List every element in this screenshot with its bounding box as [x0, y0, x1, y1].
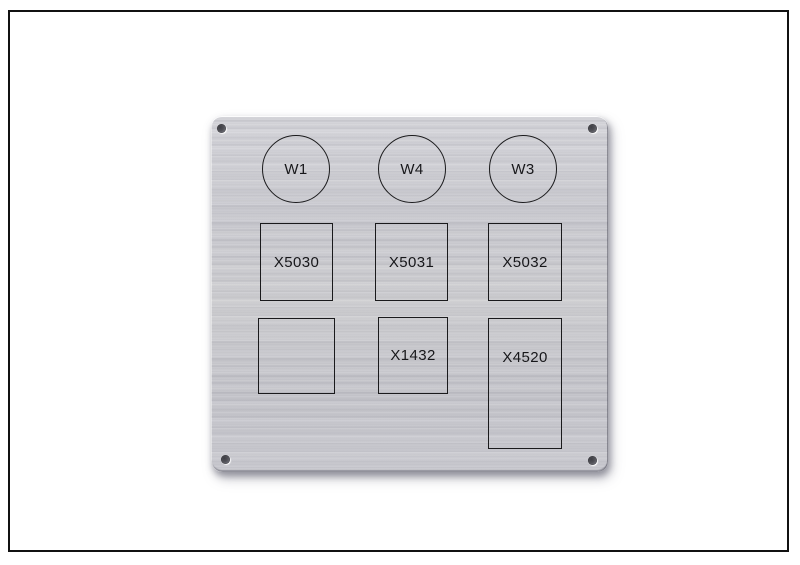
square-label-x1432: X1432 [390, 347, 435, 364]
aluminum-panel-plate: W1 W4 W3 X5030 X5031 X5032 X1432 [211, 116, 608, 472]
circle-label-w1: W1 [284, 161, 307, 178]
engraved-square-x1432: X1432 [378, 317, 448, 394]
engraved-circle-w4: W4 [378, 135, 446, 203]
mounting-hole-top-left [217, 124, 226, 133]
engraved-rectangle-x4520: X4520 [488, 318, 562, 449]
circle-label-w4: W4 [400, 161, 423, 178]
square-label-x5031: X5031 [389, 254, 434, 271]
square-label-x5032: X5032 [502, 254, 547, 271]
photo-canvas: W1 W4 W3 X5030 X5031 X5032 X1432 [0, 0, 800, 565]
engraved-square-x5030: X5030 [260, 223, 333, 301]
engraved-square-empty [258, 318, 335, 394]
picture-frame-border: W1 W4 W3 X5030 X5031 X5032 X1432 [8, 10, 789, 552]
mounting-hole-bottom-left [221, 455, 230, 464]
engraved-square-x5031: X5031 [375, 223, 448, 301]
mounting-hole-bottom-right [588, 456, 597, 465]
engraved-circle-w1: W1 [262, 135, 330, 203]
engraved-circle-w3: W3 [489, 135, 557, 203]
rectangle-label-area-x4520: X4520 [489, 319, 561, 396]
engraved-square-x5032: X5032 [488, 223, 562, 301]
circle-label-w3: W3 [511, 161, 534, 178]
square-label-x5030: X5030 [274, 254, 319, 271]
mounting-hole-top-right [588, 124, 597, 133]
rectangle-label-x4520: X4520 [502, 349, 547, 366]
